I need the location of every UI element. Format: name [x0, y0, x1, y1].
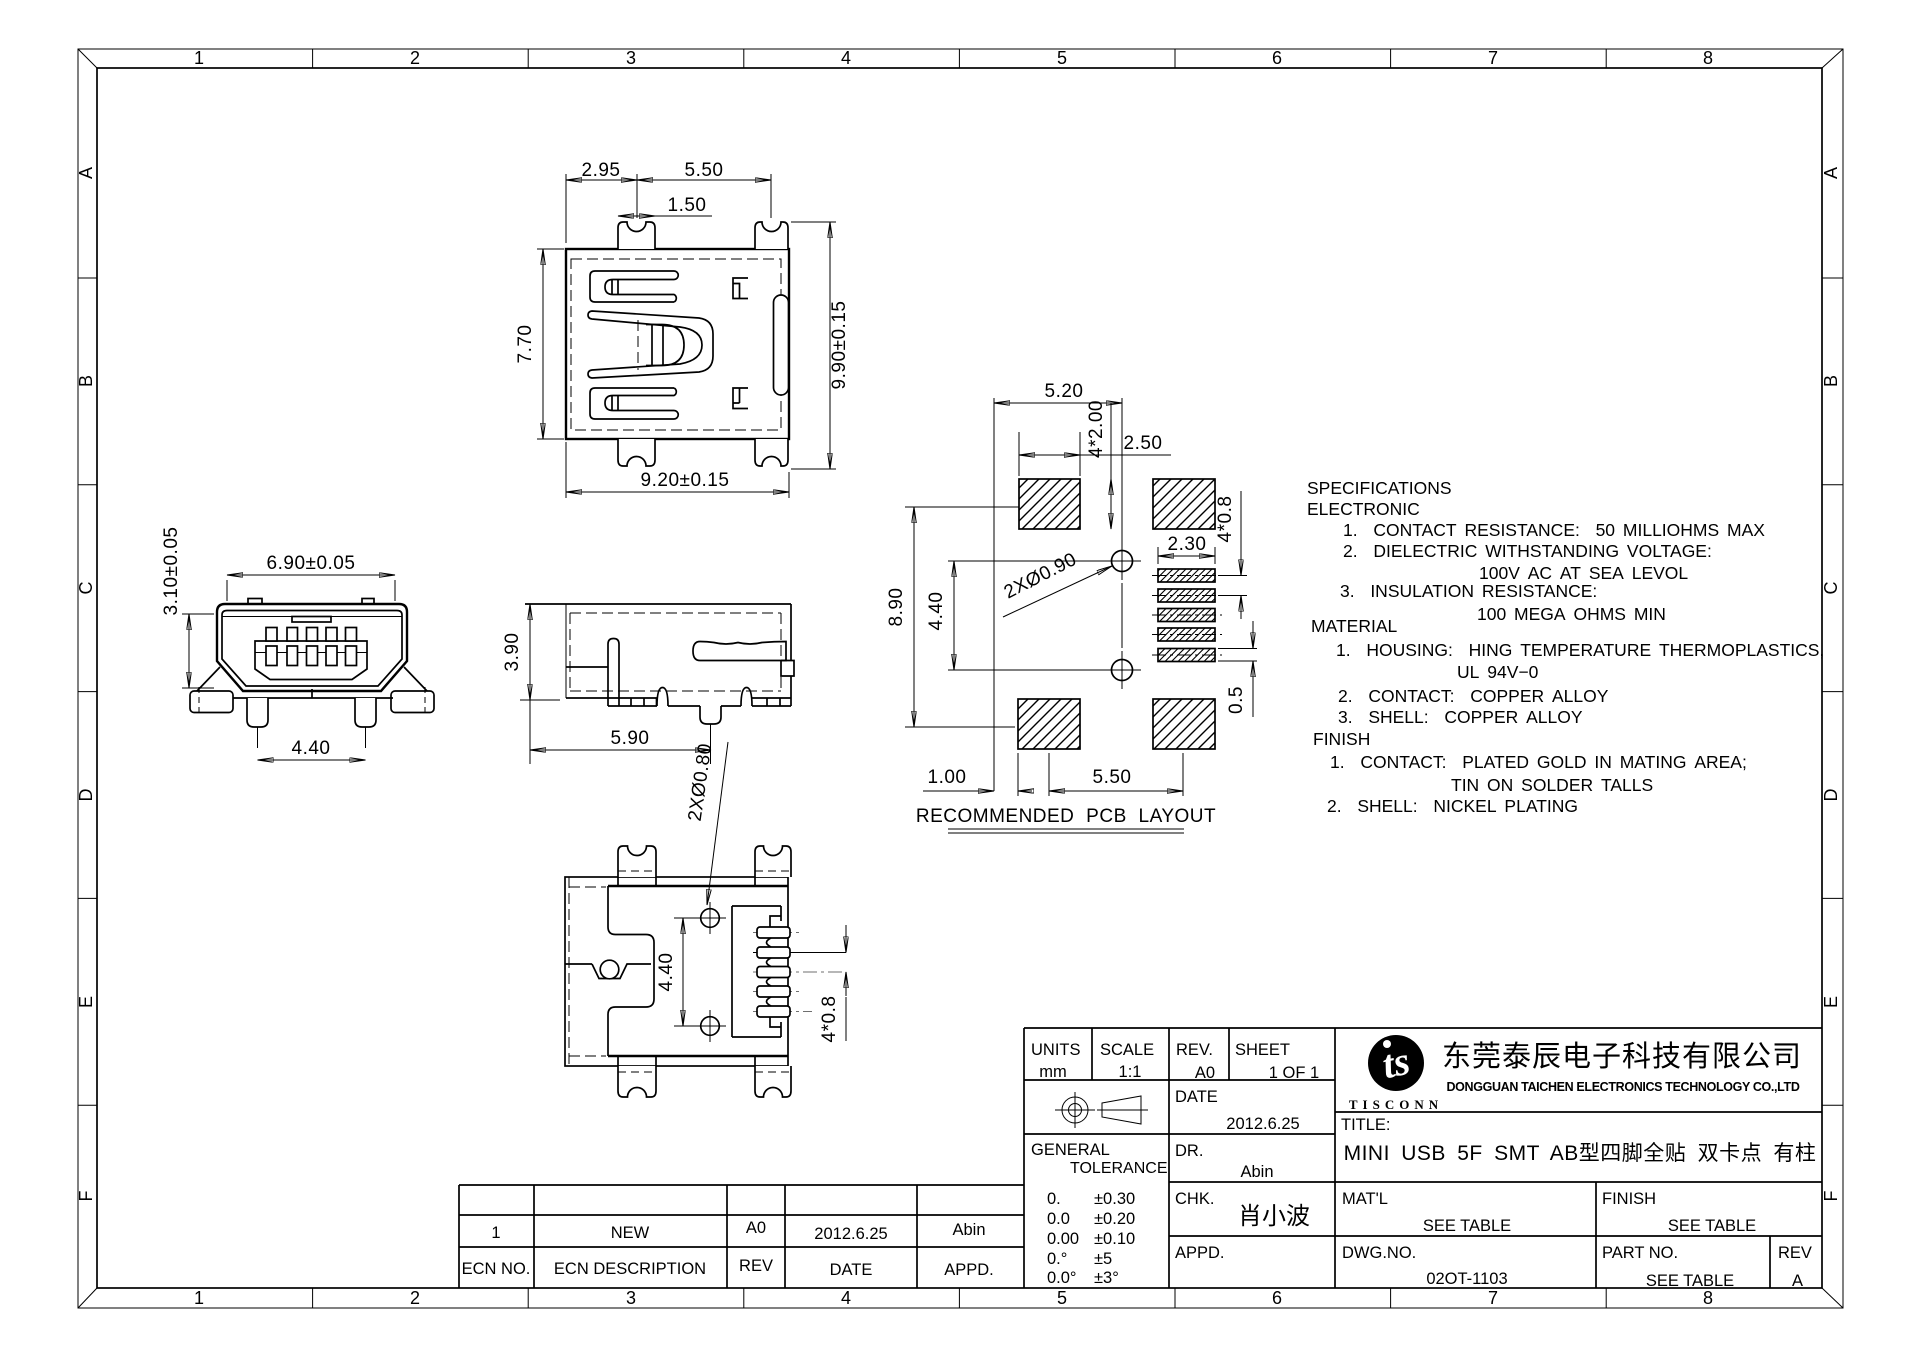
- svg-text:FINISH: FINISH: [1313, 729, 1370, 749]
- svg-text:APPD.: APPD.: [944, 1261, 994, 1279]
- svg-text:DATE: DATE: [1175, 1088, 1218, 1106]
- svg-text:DWG.NO.: DWG.NO.: [1342, 1244, 1416, 1262]
- svg-text:ECN NO.: ECN NO.: [462, 1260, 531, 1278]
- svg-text:GENERAL: GENERAL: [1031, 1141, 1110, 1159]
- svg-text:F: F: [76, 1191, 96, 1202]
- svg-text:100V AC AT SEA LEVOL: 100V AC AT SEA LEVOL: [1479, 563, 1688, 583]
- svg-text:4.40: 4.40: [926, 592, 947, 631]
- svg-text:7: 7: [1488, 1288, 1498, 1308]
- svg-text:REV: REV: [1778, 1244, 1812, 1262]
- svg-text:5: 5: [1057, 1288, 1067, 1308]
- svg-text:6: 6: [1272, 48, 1282, 68]
- svg-text:5: 5: [1057, 48, 1067, 68]
- svg-text:2: 2: [410, 1288, 420, 1308]
- svg-text:DATE: DATE: [830, 1261, 873, 1279]
- svg-text:±0.20: ±0.20: [1094, 1210, 1135, 1228]
- svg-text:CHK.: CHK.: [1175, 1190, 1214, 1208]
- svg-text:E: E: [76, 996, 96, 1008]
- svg-text:SEE TABLE: SEE TABLE: [1668, 1217, 1756, 1235]
- svg-text:DONGGUAN TAICHEN ELECTRONICS T: DONGGUAN TAICHEN ELECTRONICS TECHNOLOGY …: [1447, 1080, 1800, 1094]
- svg-text:6: 6: [1272, 1288, 1282, 1308]
- svg-text:A0: A0: [1195, 1064, 1215, 1082]
- svg-text:SHEET: SHEET: [1235, 1041, 1290, 1059]
- svg-text:UL 94V−0: UL 94V−0: [1457, 662, 1539, 682]
- svg-text:1. CONTACT RESISTANCE: 50 MI: 1. CONTACT RESISTANCE: 50 MILLIOHMS MAX: [1343, 520, 1765, 540]
- svg-text:±0.10: ±0.10: [1094, 1230, 1135, 1248]
- svg-text:±3°: ±3°: [1094, 1269, 1119, 1287]
- svg-text:SPECIFICATIONS: SPECIFICATIONS: [1307, 478, 1452, 498]
- svg-text:TITLE:: TITLE:: [1341, 1116, 1391, 1134]
- svg-text:100 MEGA OHMS MIN: 100 MEGA OHMS MIN: [1477, 604, 1666, 624]
- svg-text:4.40: 4.40: [292, 738, 331, 759]
- svg-text:ECN DESCRIPTION: ECN DESCRIPTION: [554, 1260, 706, 1278]
- svg-text:2. DIELECTRIC WITHSTANDING VO: 2. DIELECTRIC WITHSTANDING VOLTAGE:: [1343, 541, 1712, 561]
- svg-text:肖小波: 肖小波: [1238, 1203, 1310, 1230]
- svg-text:3. SHELL: COPPER ALLOY: 3. SHELL: COPPER ALLOY: [1338, 707, 1583, 727]
- svg-text:7: 7: [1488, 48, 1498, 68]
- svg-text:4: 4: [841, 48, 851, 68]
- svg-text:5.20: 5.20: [1045, 381, 1084, 402]
- svg-text:REV.: REV.: [1176, 1041, 1213, 1059]
- svg-text:02OT-1103: 02OT-1103: [1426, 1270, 1507, 1288]
- svg-text:8: 8: [1703, 48, 1713, 68]
- svg-text:MINI USB 5F SMT AB型四脚全贴 双卡点 有柱: MINI USB 5F SMT AB型四脚全贴 双卡点 有柱: [1344, 1142, 1817, 1165]
- svg-text:4*2.00: 4*2.00: [1086, 400, 1107, 458]
- svg-text:F: F: [1821, 1191, 1841, 1202]
- svg-text:REV: REV: [739, 1257, 773, 1275]
- svg-text:6.90±0.05: 6.90±0.05: [267, 553, 356, 574]
- svg-text:3: 3: [626, 48, 636, 68]
- svg-text:mm: mm: [1039, 1063, 1067, 1081]
- svg-text:9.20±0.15: 9.20±0.15: [641, 470, 730, 491]
- svg-text:DR.: DR.: [1175, 1142, 1203, 1160]
- svg-text:D: D: [76, 789, 96, 802]
- svg-text:±5: ±5: [1094, 1250, 1112, 1268]
- svg-text:2.50: 2.50: [1124, 433, 1163, 454]
- svg-text:2.30: 2.30: [1168, 534, 1207, 555]
- svg-text:5.50: 5.50: [685, 160, 724, 181]
- svg-text:9.90±0.15: 9.90±0.15: [829, 301, 850, 390]
- svg-text:2012.6.25: 2012.6.25: [814, 1225, 887, 1243]
- svg-text:1:1: 1:1: [1119, 1063, 1142, 1081]
- svg-text:Abin: Abin: [952, 1221, 985, 1239]
- svg-text:8.90: 8.90: [886, 588, 907, 627]
- svg-text:MAT'L: MAT'L: [1342, 1190, 1388, 1208]
- svg-text:1: 1: [194, 1288, 204, 1308]
- svg-text:3. INSULATION RESISTANCE:: 3. INSULATION RESISTANCE:: [1340, 581, 1597, 601]
- svg-text:FINISH: FINISH: [1602, 1190, 1656, 1208]
- svg-text:3.10±0.05: 3.10±0.05: [161, 527, 182, 616]
- svg-text:NEW: NEW: [611, 1224, 650, 1242]
- svg-text:5.50: 5.50: [1093, 767, 1132, 788]
- svg-text:B: B: [1821, 375, 1841, 387]
- svg-text:1 OF 1: 1 OF 1: [1269, 1064, 1319, 1082]
- svg-text:7.70: 7.70: [515, 325, 536, 364]
- svg-text:0.5: 0.5: [1226, 686, 1247, 714]
- svg-text:东莞泰辰电子科技有限公司: 东莞泰辰电子科技有限公司: [1442, 1040, 1802, 1073]
- svg-text:A: A: [1792, 1272, 1803, 1290]
- svg-text:1. HOUSING: HING TEMPERATURE: 1. HOUSING: HING TEMPERATURE THERMOPLAST…: [1336, 640, 1824, 660]
- svg-text:1: 1: [194, 48, 204, 68]
- svg-text:C: C: [76, 582, 96, 595]
- svg-text:1: 1: [491, 1224, 500, 1242]
- svg-text:C: C: [1821, 582, 1841, 595]
- svg-text:TIN ON SOLDER TALLS: TIN ON SOLDER TALLS: [1451, 775, 1653, 795]
- svg-text:4.40: 4.40: [656, 953, 677, 992]
- svg-text:2XØ0.80: 2XØ0.80: [685, 742, 717, 823]
- svg-text:0.00: 0.00: [1047, 1230, 1079, 1248]
- svg-text:0.0°: 0.0°: [1047, 1269, 1077, 1287]
- svg-text:MATERIAL: MATERIAL: [1311, 616, 1397, 636]
- svg-text:A0: A0: [746, 1219, 766, 1237]
- svg-text:4*0.8: 4*0.8: [1215, 496, 1236, 543]
- svg-text:TOLERANCE: TOLERANCE: [1070, 1160, 1168, 1177]
- svg-text:2. SHELL: NICKEL PLATING: 2. SHELL: NICKEL PLATING: [1327, 796, 1578, 816]
- svg-text:2. CONTACT: COPPER ALLOY: 2. CONTACT: COPPER ALLOY: [1338, 686, 1609, 706]
- svg-text:5.90: 5.90: [611, 728, 650, 749]
- svg-text:0.°: 0.°: [1047, 1250, 1067, 1268]
- svg-text:1.00: 1.00: [928, 767, 967, 788]
- svg-text:UNITS: UNITS: [1031, 1041, 1081, 1059]
- svg-text:Abin: Abin: [1240, 1163, 1273, 1181]
- svg-text:APPD.: APPD.: [1175, 1244, 1225, 1262]
- svg-text:RECOMMENDED PCB LAYOUT: RECOMMENDED PCB LAYOUT: [916, 806, 1216, 827]
- svg-text:E: E: [1821, 996, 1841, 1008]
- svg-text:4*0.8: 4*0.8: [819, 996, 840, 1043]
- svg-text:2012.6.25: 2012.6.25: [1226, 1115, 1299, 1133]
- svg-text:4: 4: [841, 1288, 851, 1308]
- svg-text:2.95: 2.95: [582, 160, 621, 181]
- svg-text:ELECTRONIC: ELECTRONIC: [1307, 499, 1420, 519]
- svg-text:3: 3: [626, 1288, 636, 1308]
- svg-text:±0.30: ±0.30: [1094, 1190, 1135, 1208]
- svg-text:TISCONN: TISCONN: [1349, 1097, 1443, 1112]
- svg-text:8: 8: [1703, 1288, 1713, 1308]
- svg-text:0.0: 0.0: [1047, 1210, 1070, 1228]
- svg-text:2XØ0.90: 2XØ0.90: [1001, 549, 1080, 603]
- svg-text:3.90: 3.90: [502, 633, 523, 672]
- svg-text:1. CONTACT: PLATED GOLD IN M: 1. CONTACT: PLATED GOLD IN MATING AREA;: [1330, 752, 1747, 772]
- svg-text:1.50: 1.50: [668, 195, 707, 216]
- svg-text:A: A: [76, 167, 96, 179]
- svg-text:PART NO.: PART NO.: [1602, 1244, 1678, 1262]
- svg-text:D: D: [1821, 789, 1841, 802]
- svg-text:SEE TABLE: SEE TABLE: [1646, 1272, 1734, 1290]
- svg-text:A: A: [1821, 167, 1841, 179]
- svg-text:B: B: [76, 375, 96, 387]
- svg-text:0.: 0.: [1047, 1190, 1061, 1208]
- svg-text:SEE TABLE: SEE TABLE: [1423, 1217, 1511, 1235]
- svg-text:2: 2: [410, 48, 420, 68]
- svg-text:SCALE: SCALE: [1100, 1041, 1154, 1059]
